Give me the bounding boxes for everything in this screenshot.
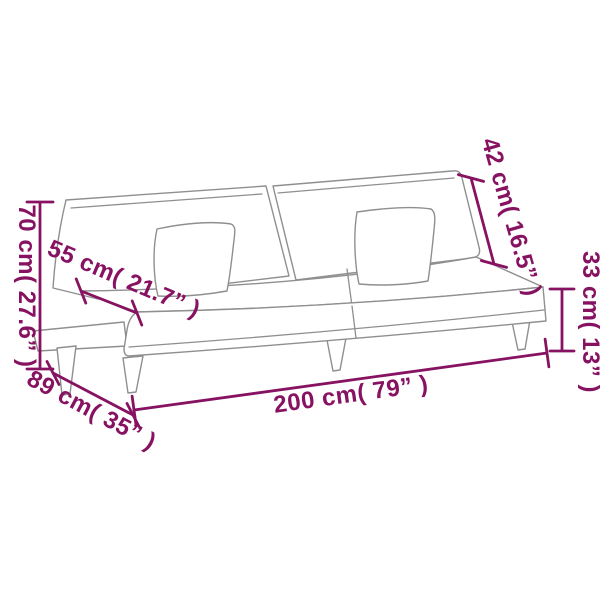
dimension-height-label: 70 cm( 27.6” ) [13, 204, 40, 367]
sofa-leg-middle [327, 338, 346, 371]
sofa-leg-front-left [123, 356, 143, 393]
product-dimension-image: 70 cm( 27.6” ) 55 cm( 21.7” ) 42 cm( 16.… [0, 0, 600, 600]
sofa-bed-dimension-diagram: 70 cm( 27.6” ) 55 cm( 21.7” ) 42 cm( 16.… [0, 0, 600, 600]
dimension-seat-height-line [550, 289, 574, 351]
sofa-pillow-right [355, 208, 435, 285]
dimension-seat-height-label: 33 cm( 13” ) [577, 251, 600, 393]
dimension-length-label: 200 cm( 79” ) [272, 370, 430, 418]
dimension-seat-height: 33 cm( 13” ) [550, 251, 600, 393]
sofa-left-base-rail [33, 322, 127, 351]
